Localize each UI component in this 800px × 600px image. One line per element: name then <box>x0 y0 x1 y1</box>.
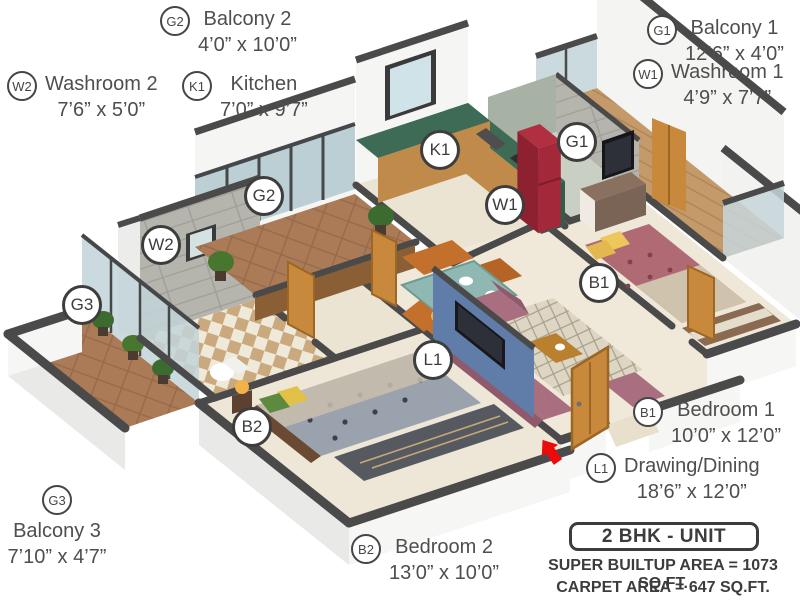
plan-marker-b1: B1 <box>579 263 619 303</box>
callout-balcony3: G3 Balcony 3 7’10” x 4’7” <box>0 485 117 570</box>
room-name: Washroom 2 <box>45 71 158 97</box>
room-name: Kitchen <box>220 71 308 97</box>
callout-bedroom1: B1 Bedroom 1 10’0” x 12’0” <box>633 397 781 449</box>
room-name: Drawing/Dining <box>624 453 760 479</box>
callout-drawing-dining: L1 Drawing/Dining 18’6” x 12’0” <box>586 453 760 505</box>
room-size: 7’10” x 4’7” <box>8 544 107 570</box>
plan-marker-b2: B2 <box>232 407 272 447</box>
callout-bedroom2: B2 Bedroom 2 13’0” x 10’0” <box>351 534 499 586</box>
unit-type-box: 2 BHK - UNIT <box>569 522 759 551</box>
plan-marker-k1: K1 <box>420 130 460 170</box>
room-size: 7’6” x 5’0” <box>45 97 158 123</box>
room-name: Balcony 2 <box>198 6 297 32</box>
room-code-badge: G2 <box>160 6 190 36</box>
room-size: 18’6” x 12’0” <box>624 479 760 505</box>
room-size: 4’0” x 10’0” <box>198 32 297 58</box>
room-code-badge: L1 <box>586 453 616 483</box>
room-code-badge: W2 <box>7 71 37 101</box>
floorplan-page: G2 K1 W2 G1 W1 B1 L1 B2 G3 G2 Balcony 2 … <box>0 0 800 600</box>
room-code-badge: B2 <box>351 534 381 564</box>
plan-marker-g2: G2 <box>244 176 284 216</box>
room-code-badge: K1 <box>182 71 212 101</box>
room-size: 10’0” x 12’0” <box>671 423 781 449</box>
plan-marker-l1: L1 <box>413 340 453 380</box>
fridge-icon <box>517 124 560 233</box>
room-code-badge: G1 <box>647 15 677 45</box>
room-name: Washroom 1 <box>671 59 784 85</box>
door-icon <box>288 262 314 338</box>
room-name: Bedroom 1 <box>671 397 781 423</box>
plan-marker-w2: W2 <box>141 225 181 265</box>
room-size: 4’9” x 7’7” <box>671 85 784 111</box>
room-name: Bedroom 2 <box>389 534 499 560</box>
room-name: Balcony 1 <box>685 15 784 41</box>
room-code-badge: W1 <box>633 59 663 89</box>
room-size: 7’0” x 9’7” <box>220 97 308 123</box>
room-code-badge: G3 <box>42 485 72 515</box>
carpet-area: CARPET AREA = 647 SQ.FT. <box>526 579 800 597</box>
callout-washroom1: W1 Washroom 1 4’9” x 7’7” <box>633 59 784 111</box>
plan-marker-w1: W1 <box>485 185 525 225</box>
plan-marker-g1: G1 <box>557 122 597 162</box>
door-icon <box>688 266 714 340</box>
room-code-badge: B1 <box>633 397 663 427</box>
callout-washroom2: W2 Washroom 2 7’6” x 5’0” <box>7 71 158 123</box>
room-name: Balcony 3 <box>8 518 107 544</box>
lamp-icon <box>235 380 249 394</box>
plan-marker-g3: G3 <box>62 285 102 325</box>
callout-balcony2: G2 Balcony 2 4’0” x 10’0” <box>160 6 297 58</box>
door-icon <box>372 230 396 306</box>
room-size: 13’0” x 10’0” <box>389 560 499 586</box>
callout-kitchen: K1 Kitchen 7’0” x 9’7” <box>182 71 308 123</box>
